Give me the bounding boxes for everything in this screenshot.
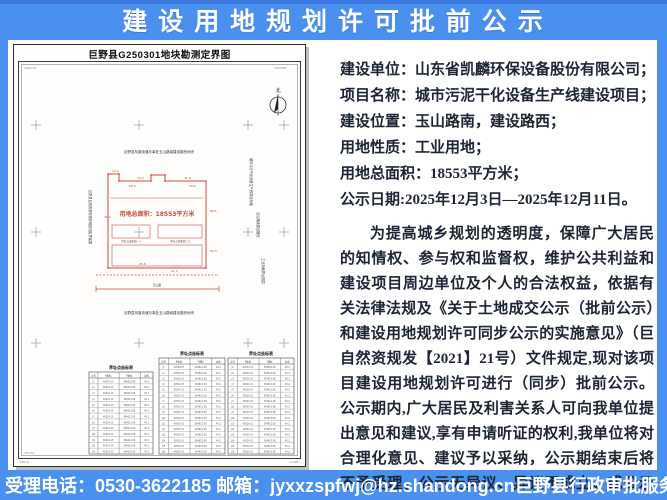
- table-cell: J13: [91, 451, 96, 454]
- table-cell: 394612.08: [195, 377, 207, 380]
- table-cell: 40524.15: [243, 428, 254, 431]
- table-cell: 40524.15: [174, 434, 185, 437]
- table-cell: 394612.08: [123, 445, 135, 448]
- table-cell: 394612.08: [264, 451, 276, 454]
- table-cell: 40524.15: [103, 386, 114, 389]
- notice-panel: 建设单位：山东省凯麟环保设备股份有限公司； 项目名称：城市污泥干化设备生产线建设…: [340, 57, 654, 500]
- table-cell: 40524.15: [174, 394, 185, 397]
- boundary-point: [118, 173, 120, 175]
- inner-building: [112, 225, 150, 238]
- boundary-point: [150, 174, 152, 176]
- dimension-label: 88.5: [210, 209, 217, 213]
- coord-table-title: 界址点坐标表: [180, 350, 204, 356]
- table-cell: 40524.15: [174, 445, 185, 448]
- table-cell: 394612.08: [195, 406, 207, 409]
- boundary-point: [150, 180, 152, 182]
- dimension-label: 95.8: [139, 262, 146, 266]
- table-cell: 394612.08: [195, 434, 207, 437]
- table-cell: 40524.15: [103, 404, 114, 407]
- table-cell: 45.2: [144, 445, 149, 448]
- table-header-cell: 边长: [144, 373, 149, 377]
- table-cell: 40524.15: [243, 406, 254, 409]
- table-cell: 40524.15: [103, 445, 114, 448]
- dimension-label: 33.6: [189, 184, 196, 188]
- info-line-unit: 建设单位：山东省凯麟环保设备股份有限公司；: [340, 57, 654, 83]
- table-cell: J13: [161, 434, 166, 437]
- table-cell: J14: [230, 439, 235, 442]
- map-frame: 3904.253904.85394.61394.95北巨野县凤凰街道办事处玉山路…: [18, 61, 301, 459]
- notice-page: 建 设 用 地 规 划 许 可 批 前 公 示 巨野县G250301地块勘测定界…: [0, 0, 667, 500]
- road-label: 玉山路: [153, 283, 162, 287]
- header-banner: 建 设 用 地 规 划 许 可 批 前 公 示: [0, 0, 667, 40]
- table-cell: 45.2: [216, 366, 221, 369]
- table-cell: 45.2: [216, 434, 221, 437]
- table-cell: J16: [230, 451, 235, 454]
- table-cell: 394612.08: [264, 417, 276, 420]
- table-cell: 40524.15: [243, 389, 254, 392]
- dimension-label: 45.2: [104, 215, 111, 219]
- table-cell: J12: [91, 445, 96, 448]
- table-cell: 40524.15: [103, 415, 114, 418]
- sheet-note-left: 945-12: [20, 460, 29, 464]
- dimension-label: 12.4: [112, 169, 119, 173]
- vertical-micro-note: 工业用地界址范围: [261, 258, 266, 284]
- table-cell: 394612.08: [123, 398, 135, 401]
- table-cell: 45.2: [216, 417, 221, 420]
- table-cell: 394612.08: [264, 400, 276, 403]
- table-cell: 40524.15: [174, 400, 185, 403]
- table-cell: J13: [230, 434, 235, 437]
- table-header-cell: 点号: [161, 359, 166, 363]
- table-cell: 394612.08: [123, 404, 135, 407]
- table-header-cell: Y坐标: [126, 373, 133, 377]
- table-header-cell: 点号: [91, 373, 96, 377]
- table-cell: 45.2: [285, 377, 290, 380]
- table-cell: 45.2: [144, 392, 149, 395]
- table-cell: 394612.08: [195, 394, 207, 397]
- table-cell: 40524.15: [243, 411, 254, 414]
- table-cell: 40524.15: [243, 422, 254, 425]
- table-cell: 45.2: [285, 434, 290, 437]
- table-cell: J12: [161, 428, 166, 431]
- table-cell: 40524.15: [103, 380, 114, 383]
- table-cell: 394612.08: [264, 372, 276, 375]
- table-cell: 394612.08: [195, 417, 207, 420]
- coord-table-title: 界址点坐标表: [249, 350, 273, 356]
- table-cell: 40524.15: [103, 439, 114, 442]
- table-cell: 40524.15: [174, 377, 185, 380]
- table-cell: 394612.08: [123, 410, 135, 413]
- boundary-point: [118, 180, 120, 182]
- table-cell: 40524.15: [243, 366, 254, 369]
- table-cell: 40524.15: [243, 434, 254, 437]
- table-cell: 394612.08: [195, 422, 207, 425]
- content-area: 巨野县G250301地块勘测定界图 3904.253904.85394.6139…: [8, 40, 657, 470]
- table-cell: 40524.15: [103, 410, 114, 413]
- table-cell: 45.2: [285, 451, 290, 454]
- table-cell: 45.2: [285, 394, 290, 397]
- table-cell: 394612.08: [264, 422, 276, 425]
- table-cell: 45.2: [216, 422, 221, 425]
- table-cell: 40524.15: [103, 398, 114, 401]
- inner-building: [158, 225, 202, 238]
- table-cell: 45.2: [144, 404, 149, 407]
- table-cell: 45.2: [216, 400, 221, 403]
- table-header-cell: X坐标: [105, 373, 112, 377]
- table-cell: 40524.15: [174, 428, 185, 431]
- info-line-location: 建设位置：玉山路南，建设路西；: [340, 109, 654, 135]
- boundary-point: [205, 267, 207, 269]
- table-cell: 40524.15: [174, 389, 185, 392]
- boundary-point: [205, 180, 207, 182]
- table-cell: 394612.08: [195, 372, 207, 375]
- table-cell: 45.2: [216, 389, 221, 392]
- table-header-cell: X坐标: [176, 359, 183, 363]
- table-cell: 45.2: [285, 400, 290, 403]
- table-cell: 394612.08: [195, 366, 207, 369]
- vertical-micro-note: 巨野县自然资源和规划局勘测定界成果: [88, 190, 93, 245]
- table-cell: 394612.08: [123, 433, 135, 436]
- table-cell: 394612.08: [195, 411, 207, 414]
- boundary-point: [107, 267, 109, 269]
- boundary-point: [164, 180, 166, 182]
- table-cell: 394612.08: [123, 415, 135, 418]
- table-cell: J11: [91, 439, 96, 442]
- table-cell: 394612.08: [123, 421, 135, 424]
- table-cell: 40524.15: [174, 406, 185, 409]
- table-cell: 40524.15: [174, 417, 185, 420]
- table-cell: 40524.15: [174, 383, 185, 386]
- map-title: 巨野县G250301地块勘测定界图: [14, 47, 305, 61]
- dimension-label: 30.2: [137, 176, 144, 180]
- table-cell: 45.2: [216, 411, 221, 414]
- table-cell: 45.2: [144, 451, 149, 454]
- table-cell: 394612.08: [264, 428, 276, 431]
- table-cell: 45.2: [285, 372, 290, 375]
- dimension-label: 21.4: [171, 269, 178, 273]
- table-cell: 45.2: [216, 445, 221, 448]
- table-cell: 45.2: [285, 366, 290, 369]
- table-cell: 40524.15: [243, 439, 254, 442]
- table-cell: 394612.08: [264, 406, 276, 409]
- table-cell: 394612.08: [195, 451, 207, 454]
- info-line-dates: 公示日期:2025年12月3日—2025年12月11日。: [340, 187, 654, 213]
- table-cell: 394612.08: [264, 445, 276, 448]
- inner-building-label: 界址点成果表(一): [121, 239, 140, 243]
- table-cell: J11: [161, 422, 166, 425]
- parcel-boundary: [108, 174, 206, 268]
- vertical-micro-note: 玉山路南建设路西: [256, 212, 261, 238]
- table-cell: 40524.15: [174, 372, 185, 375]
- vertical-micro-note: 城市污泥干化设备生产线项目用地: [249, 158, 254, 207]
- table-cell: 40524.15: [174, 411, 185, 414]
- table-cell: 45.2: [285, 383, 290, 386]
- table-cell: 394612.08: [195, 400, 207, 403]
- table-cell: 40524.15: [103, 433, 114, 436]
- table-cell: 394612.08: [123, 392, 135, 395]
- table-cell: 40524.15: [103, 421, 114, 424]
- table-cell: 45.2: [285, 422, 290, 425]
- table-cell: J12: [230, 428, 235, 431]
- table-cell: J11: [230, 422, 235, 425]
- table-cell: 40524.15: [174, 422, 185, 425]
- north-label: 北: [275, 87, 280, 94]
- table-cell: 40524.15: [174, 439, 185, 442]
- table-header-cell: 边长: [285, 359, 290, 363]
- map-bottom-caption: 巨野县凤凰街道办事处玉山路南建设路西地块: [124, 310, 194, 315]
- inner-parcel-section: [112, 245, 202, 266]
- table-cell: 40524.15: [174, 366, 185, 369]
- table-cell: 40524.15: [243, 445, 254, 448]
- table-cell: 45.2: [216, 383, 221, 386]
- table-cell: 394612.08: [123, 439, 135, 442]
- table-cell: 45.2: [216, 428, 221, 431]
- boundary-point: [164, 174, 166, 176]
- table-cell: 45.2: [216, 439, 221, 442]
- table-cell: 45.2: [285, 411, 290, 414]
- notice-paragraph: 为提高城乡规划的透明度，保障广大居民的知情权、参与权和监督权，维护公共利益和建设…: [340, 222, 654, 500]
- table-cell: J10: [91, 433, 96, 436]
- survey-map-sheet: 巨野县G250301地块勘测定界图 3904.253904.85394.6139…: [13, 44, 306, 467]
- table-cell: 40524.15: [243, 372, 254, 375]
- boundary-point: [107, 173, 109, 175]
- table-cell: 45.2: [285, 417, 290, 420]
- table-cell: 394612.08: [123, 386, 135, 389]
- dimension-label: 41.8: [184, 176, 191, 180]
- table-header-cell: Y坐标: [266, 359, 273, 363]
- corner-coordinate-label: 394.61: [24, 451, 35, 455]
- table-cell: 40524.15: [243, 451, 254, 454]
- table-cell: 45.2: [216, 451, 221, 454]
- table-cell: 40524.15: [243, 383, 254, 386]
- corner-coordinate-label: 3904.25: [24, 66, 36, 70]
- table-cell: 40524.15: [103, 427, 114, 430]
- table-cell: 394612.08: [195, 445, 207, 448]
- table-cell: 45.2: [144, 427, 149, 430]
- map-top-caption: 巨野县凤凰街道办事处玉山路南建设路西地块: [124, 149, 194, 154]
- footer-bar: 受理电话：0530-3622185 邮箱：jyxxzspfwj@hz.shand…: [0, 470, 667, 500]
- footer-contact: 受理电话：0530-3622185 邮箱：jyxxzspfwj@hz.shand…: [0, 472, 667, 498]
- table-cell: 45.2: [216, 377, 221, 380]
- table-cell: J10: [230, 417, 235, 420]
- table-cell: 394612.08: [264, 366, 276, 369]
- table-header-cell: 边长: [216, 359, 221, 363]
- parcel-area-label: 用地总面积：18553平方米: [119, 210, 195, 218]
- table-header-cell: Y坐标: [197, 359, 204, 363]
- table-cell: 45.2: [216, 406, 221, 409]
- table-cell: 394612.08: [123, 427, 135, 430]
- table-cell: 40524.15: [243, 400, 254, 403]
- table-cell: 40524.15: [243, 394, 254, 397]
- table-cell: 394612.08: [195, 389, 207, 392]
- table-cell: 40524.15: [103, 451, 114, 454]
- inner-building-label: 界址点成果表(二): [170, 239, 189, 243]
- info-line-land-use: 用地性质：工业用地；: [340, 135, 654, 161]
- table-cell: 45.2: [144, 439, 149, 442]
- table-cell: 394612.08: [264, 383, 276, 386]
- table-cell: 45.2: [144, 410, 149, 413]
- table-cell: 45.2: [144, 421, 149, 424]
- table-cell: J10: [161, 417, 166, 420]
- sheet-note-right: 1:2000: [290, 460, 299, 464]
- table-cell: 394612.08: [264, 394, 276, 397]
- table-cell: 45.2: [285, 445, 290, 448]
- table-cell: 45.2: [144, 433, 149, 436]
- table-cell: 45.2: [144, 415, 149, 418]
- table-cell: 45.2: [144, 380, 149, 383]
- table-cell: 40524.15: [174, 451, 185, 454]
- table-cell: J15: [161, 445, 166, 448]
- table-cell: J14: [161, 439, 166, 442]
- table-cell: 394612.08: [264, 439, 276, 442]
- table-cell: 40524.15: [243, 417, 254, 420]
- table-cell: J16: [161, 451, 166, 454]
- table-cell: 45.2: [216, 372, 221, 375]
- table-cell: 394612.08: [195, 428, 207, 431]
- info-line-area: 用地总面积：18553平方米；: [340, 161, 654, 187]
- survey-drawing: 3904.253904.85394.61394.95北巨野县凤凰街道办事处玉山路…: [19, 62, 300, 458]
- table-cell: 394612.08: [195, 439, 207, 442]
- table-cell: 45.2: [144, 386, 149, 389]
- table-header-cell: 点号: [230, 359, 235, 363]
- table-cell: J15: [230, 445, 235, 448]
- dimension-label: 60.0: [129, 184, 136, 188]
- table-cell: 45.2: [285, 406, 290, 409]
- table-cell: 394612.08: [195, 383, 207, 386]
- corner-coordinate-label: 3904.85: [274, 66, 286, 70]
- info-line-project: 项目名称：城市污泥干化设备生产线建设项目；: [340, 83, 654, 109]
- table-cell: 40524.15: [243, 377, 254, 380]
- table-cell: 45.2: [285, 439, 290, 442]
- table-cell: 394612.08: [264, 411, 276, 414]
- dimension-label: 56.3: [210, 249, 217, 253]
- table-cell: 45.2: [285, 389, 290, 392]
- table-cell: 45.2: [216, 394, 221, 397]
- coord-table-title: 界址点坐标表: [109, 364, 133, 370]
- table-cell: 394612.08: [123, 380, 135, 383]
- table-header-cell: X坐标: [245, 359, 252, 363]
- table-cell: 45.2: [144, 398, 149, 401]
- table-cell: 394612.08: [264, 377, 276, 380]
- table-cell: 394612.08: [123, 451, 135, 454]
- table-cell: 45.2: [285, 428, 290, 431]
- table-cell: 394612.08: [264, 434, 276, 437]
- page-title: 建 设 用 地 规 划 许 可 批 前 公 示: [122, 2, 544, 38]
- table-cell: 40524.15: [103, 392, 114, 395]
- table-cell: 394612.08: [264, 389, 276, 392]
